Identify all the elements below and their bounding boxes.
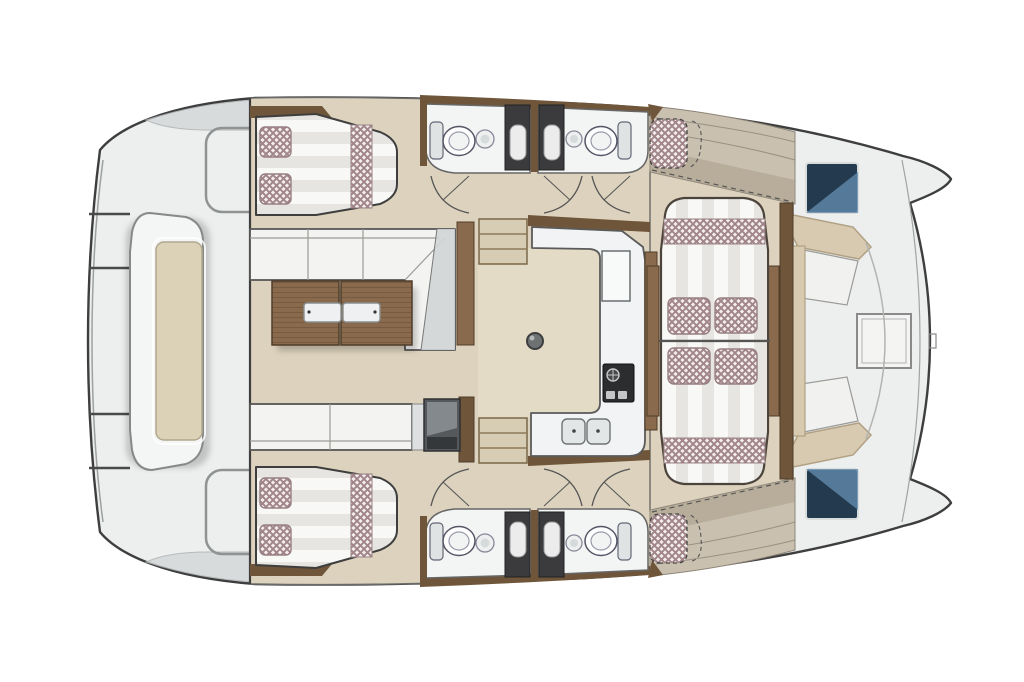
floor-plan-canvas [0,0,1024,682]
tray-handle-right [373,310,376,313]
floor-fitting-highlight [530,336,535,341]
toilet-2-tank [618,122,631,159]
stairs-body [479,219,527,264]
coffee-tables [272,281,412,345]
deck-hatch [806,163,858,213]
fridge [602,251,630,301]
toilet-1-seat [449,132,469,150]
companionway-stairs [479,219,527,264]
sunpad-cushion [650,119,687,168]
dinette-pillow-1 [668,298,710,334]
toilet-2-seat [591,132,611,150]
shower-tray-1 [510,125,526,160]
stairs-wood-panel-bottom [459,397,474,462]
stove-knob-1 [606,391,615,399]
stove-knob-2 [618,391,627,399]
dinette-side-table-left [647,266,659,416]
toilet-1-tank [430,122,443,159]
shower-tray-2 [544,125,560,160]
stove [603,364,634,402]
berth-pillow-1 [260,127,291,157]
bath-sink-1-basin [481,135,490,144]
catamaran-floor-plan [0,0,1024,682]
dinette-bench-starboard [661,341,768,484]
salon [250,229,460,451]
berth-pillow-2 [260,174,291,204]
aft-console-table-top [156,242,202,440]
bath-sink-2-basin [570,135,578,143]
berth-runner [351,125,372,208]
companionway-stairs-mirror [479,418,527,463]
cabinet-bottom-face [427,437,457,449]
bathroom-wall-wood-left [420,102,427,166]
tray-handle-left [307,310,310,313]
cabinet-tv [424,399,460,451]
floor-fitting [527,333,543,349]
dinette-bench-port [661,198,768,341]
sink-drain-right [596,429,600,433]
bathroom-divider-wood [531,105,538,172]
sofa-bottom [250,404,412,450]
dinette-pillow-2 [715,298,757,333]
bench-check-band [664,219,765,244]
bath-sink-1 [476,130,494,148]
sink-drain-left [572,429,576,433]
stairs-wood-panel-top [457,222,474,345]
dinette-back-wall-wood [780,203,793,479]
bath-sink-2 [566,131,582,147]
